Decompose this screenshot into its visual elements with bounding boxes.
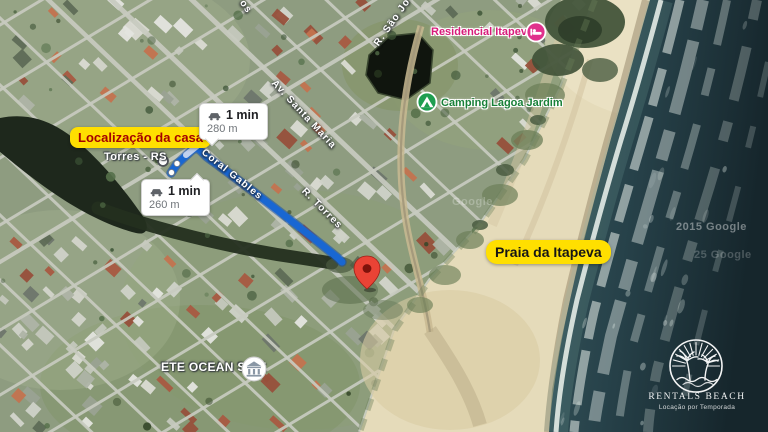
watermark-google: Google — [452, 196, 493, 208]
callout-localizacao-da-casa: Localização da casa — [70, 127, 211, 148]
route-distance: 280 m — [207, 123, 259, 135]
route-time-bubble-280m[interactable]: 1 min 280 m — [199, 103, 268, 140]
watermark-25-google: 25 Google — [694, 249, 752, 261]
route-distance: 260 m — [149, 199, 201, 211]
car-icon — [149, 185, 164, 198]
route-waypoint-dot — [169, 170, 175, 176]
watermark-2015-google: 2015 Google — [676, 221, 747, 233]
map-canvas[interactable]: R. São Jo Av. Santa Maria R. Torres Cora… — [0, 0, 768, 432]
poi-camping-lagoa-jardim[interactable]: Camping Lagoa Jardim — [441, 97, 563, 109]
car-icon — [207, 109, 222, 122]
civic-building-icon[interactable] — [241, 356, 267, 382]
route-waypoint-dot — [174, 161, 180, 167]
route-duration: 1 min — [226, 108, 259, 122]
poi-residencial-itapeva[interactable]: Residencial Itapeva — [431, 26, 533, 38]
campground-icon[interactable] — [416, 91, 438, 113]
route-time-bubble-260m[interactable]: 1 min 260 m — [141, 179, 210, 216]
callout-praia-da-itapeva: Praia da Itapeva — [486, 240, 611, 264]
rentals-beach-logo-title: RENTALS BEACH — [630, 392, 764, 402]
rentals-beach-logo-subtitle: Locação por Temporada — [630, 404, 764, 411]
lodging-icon[interactable] — [525, 21, 547, 43]
city-label-torres-rs: Torres - RS — [104, 151, 167, 163]
